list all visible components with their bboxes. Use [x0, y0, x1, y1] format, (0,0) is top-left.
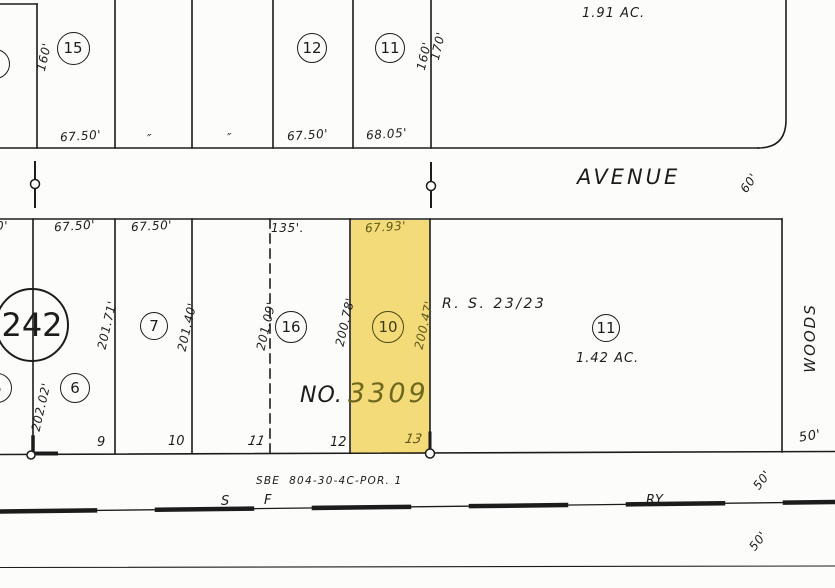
dimension-6793: 67.93': [365, 219, 407, 236]
lot-11-mid-label: 11: [596, 319, 615, 337]
dimension-partial-0: 0': [0, 219, 8, 233]
lot-circle-11-mid: 11: [592, 314, 620, 342]
lot-12-label: 12: [302, 39, 321, 57]
record-survey-ref: R. S. 23/23: [442, 296, 546, 312]
survey-monument-icon-west: [31, 162, 40, 207]
assessor-parcel-map: 9 15 12 11 160' 67.50' ″ ″ 67.50' 68.05'…: [0, 0, 835, 588]
railroad-f-label: F: [264, 493, 271, 508]
survey-monument-icon-southeast: [426, 433, 435, 458]
dimension-6750-top-a: 67.50': [60, 128, 102, 145]
lot-10-label: 10: [378, 318, 397, 336]
block-south-line: [0, 452, 835, 455]
acreage-142: 1.42 AC.: [576, 351, 639, 366]
dimension-6750-mid-b: 67.50': [131, 218, 173, 234]
survey-monument-icon-east: [427, 163, 436, 207]
lot-circle-10: 10: [372, 311, 404, 343]
lot-circle-15: 15: [57, 32, 90, 65]
lot-circle-11-top: 11: [375, 33, 405, 63]
sbe-parcel-ref: SBE 804-30-4C-POR. 1: [256, 475, 402, 487]
tract-number: 3309: [348, 378, 429, 409]
avenue-label: AVENUE: [577, 165, 680, 189]
ditto-mark-1: ″: [147, 132, 152, 146]
bottom-lot-10: 10: [168, 434, 185, 449]
map-ref-label: 242: [1, 306, 62, 344]
dimension-6805: 68.05': [366, 126, 408, 143]
south-boundary-line: [0, 566, 835, 568]
survey-monument-icon-southwest: [27, 437, 56, 459]
lot-6-label: 6: [70, 379, 80, 397]
bottom-lot-11: 11: [246, 434, 266, 449]
lot-7-label: 7: [149, 317, 159, 335]
map-linework: [0, 0, 835, 588]
lot-circle-6: 6: [60, 373, 90, 403]
bottom-lot-9: 9: [97, 435, 105, 450]
top-block-right-boundary: [758, 0, 786, 148]
lot-16-label: 16: [281, 318, 300, 336]
acreage-191: 1.91 AC.: [582, 6, 645, 21]
railroad-s-label: S: [221, 494, 229, 509]
lot-circle-7: 7: [140, 312, 168, 340]
top-block-lot-lines: [37, 0, 431, 148]
lot-circle-16: 16: [275, 311, 307, 343]
lot-11-top-label: 11: [380, 39, 399, 57]
woods-street-label: WOODS: [801, 303, 819, 373]
railroad-ry-label: RY: [646, 493, 663, 508]
lot-circle-12: 12: [297, 33, 327, 63]
partial-lot-middle-label: 5: [0, 379, 2, 397]
dimension-6750-mid-a: 67.50': [54, 218, 96, 235]
ditto-mark-2: ″: [227, 131, 232, 145]
dimension-135: 135'.: [271, 221, 304, 235]
lot-15-label: 15: [63, 39, 82, 57]
dimension-6750-top-b: 67.50': [287, 127, 329, 144]
tract-number-prefix: NO.: [300, 383, 343, 408]
bottom-lot-13: 13: [403, 432, 423, 447]
bottom-lot-12: 12: [330, 435, 347, 450]
